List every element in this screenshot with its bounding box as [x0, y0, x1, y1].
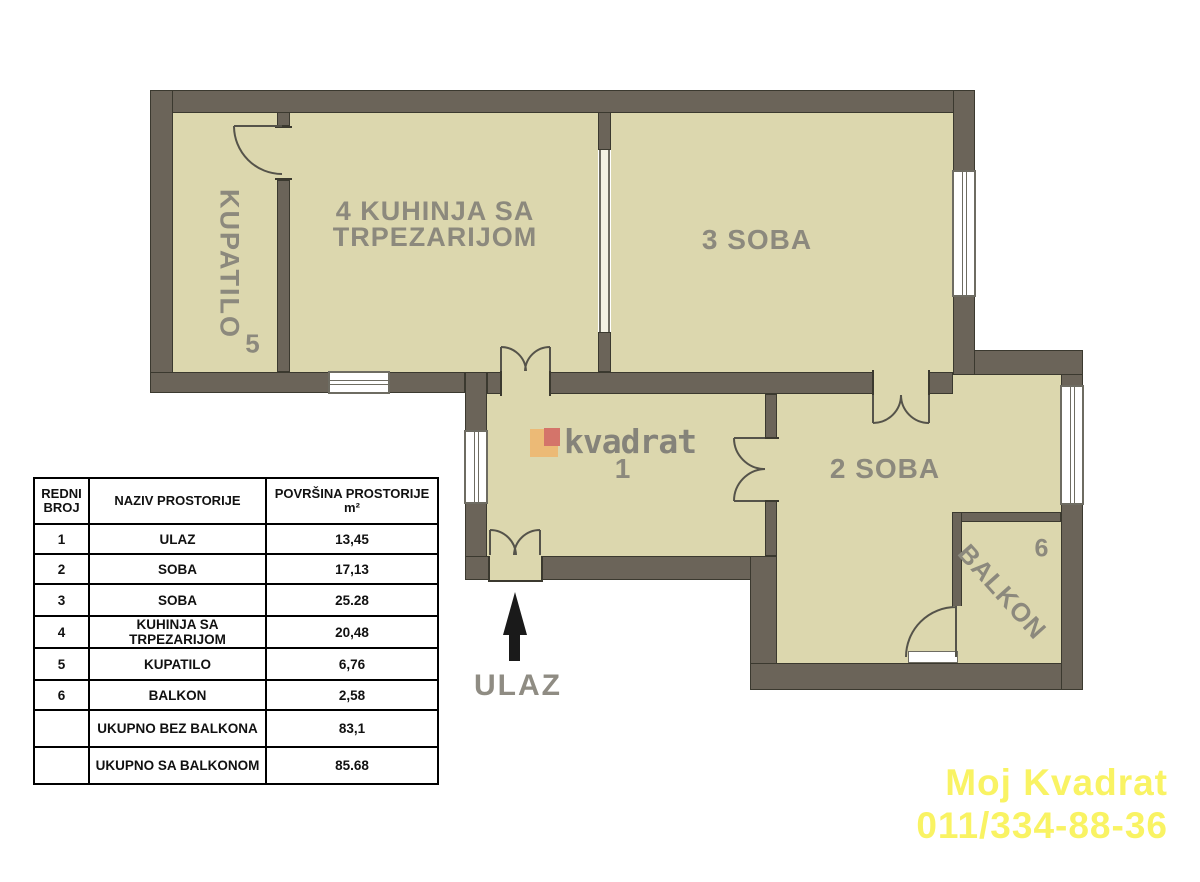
watermark-kvadrat: kvadrat [530, 425, 696, 458]
row-area: 2,58 [266, 680, 438, 710]
bathroom-door-opening [275, 126, 292, 180]
row-num [34, 710, 89, 747]
row-num: 1 [34, 524, 89, 554]
row-area: 17,13 [266, 554, 438, 584]
row-name: SOBA [89, 554, 266, 584]
wall-left [150, 90, 173, 393]
row-num: 5 [34, 648, 89, 680]
table-row-total: UKUPNO SA BALKONOM 85.68 [34, 747, 438, 784]
kitchen-door-opening [500, 370, 551, 396]
row-num: 4 [34, 616, 89, 648]
row-name: BALKON [89, 680, 266, 710]
wall-top [150, 90, 975, 113]
table-row: 4 KUHINJA SA TRPEZARIJOM 20,48 [34, 616, 438, 648]
row-name: ULAZ [89, 524, 266, 554]
window-pane [1070, 387, 1075, 503]
header-redni-broj: REDNI BROJ [34, 478, 89, 524]
room-2-floor-upper [953, 375, 1061, 405]
kitchen-room3-thin-partition [599, 150, 610, 332]
label-entrance: ULAZ [474, 669, 562, 703]
window-pane [330, 380, 388, 385]
row-area: 83,1 [266, 710, 438, 747]
area-table: REDNI BROJ NAZIV PROSTORIJE POVRŠINA PRO… [33, 477, 439, 785]
kitchen-window [328, 371, 390, 394]
row-num: 3 [34, 584, 89, 616]
label-bathroom: KUPATILO [214, 189, 245, 339]
row-num [34, 747, 89, 784]
row-name: UKUPNO BEZ BALKONA [89, 710, 266, 747]
wall-bathroom-partition [277, 180, 290, 372]
table-row: 5 KUPATILO 6,76 [34, 648, 438, 680]
wall-kitchen-room3-stub-bottom [598, 332, 611, 372]
row-area: 13,45 [266, 524, 438, 554]
row-area: 25.28 [266, 584, 438, 616]
row-num: 6 [34, 680, 89, 710]
row-area: 6,76 [266, 648, 438, 680]
room3-room2-door-opening [872, 370, 930, 396]
label-kitchen-line2: TRPEZARIJOM [333, 224, 538, 250]
header-naziv-prostorije: NAZIV PROSTORIJE [89, 478, 266, 524]
agency-phone: 011/334-88-36 [916, 804, 1168, 847]
row-name: KUPATILO [89, 648, 266, 680]
balcony-door-sill [908, 651, 958, 663]
table-row: 3 SOBA 25.28 [34, 584, 438, 616]
row-name: SOBA [89, 584, 266, 616]
label-kitchen-line1: 4 KUHINJA SA [333, 198, 538, 224]
table-header-row: REDNI BROJ NAZIV PROSTORIJE POVRŠINA PRO… [34, 478, 438, 524]
wall-room2-bottom [750, 663, 1083, 690]
watermark-text: kvadrat [564, 425, 696, 458]
row-num: 2 [34, 554, 89, 584]
agency-name: Moj Kvadrat [916, 761, 1168, 804]
room2-window [1060, 385, 1084, 505]
label-kitchen: 4 KUHINJA SA TRPEZARIJOM [333, 198, 538, 250]
entrance-opening [488, 556, 543, 582]
table-row: 2 SOBA 17,13 [34, 554, 438, 584]
table-row: 6 BALKON 2,58 [34, 680, 438, 710]
hall-room2-door-opening [763, 437, 779, 502]
kvadrat-logo-icon [530, 428, 558, 457]
wall-bottom-left [150, 372, 465, 393]
label-room3: 3 SOBA [702, 224, 812, 256]
wall-bathroom-stub [277, 112, 290, 126]
row-area: 20,48 [266, 616, 438, 648]
row-area: 85.68 [266, 747, 438, 784]
wall-kitchen-room3-stub-top [598, 112, 611, 150]
header-povrsina: POVRŠINA PROSTORIJE m² [266, 478, 438, 524]
label-balcony-number: 6 [1035, 535, 1050, 564]
agency-contact: Moj Kvadrat 011/334-88-36 [916, 761, 1168, 847]
hall-window [464, 430, 488, 504]
window-pane [962, 172, 967, 295]
room3-window [952, 170, 976, 297]
table-row: 1 ULAZ 13,45 [34, 524, 438, 554]
label-bathroom-number: 5 [245, 329, 260, 360]
wall-balcony-top [952, 512, 1061, 522]
row-name: KUHINJA SA TRPEZARIJOM [89, 616, 266, 648]
kvadrat-logo-red-square [544, 428, 560, 446]
row-name: UKUPNO SA BALKONOM [89, 747, 266, 784]
table-row-total: UKUPNO BEZ BALKONA 83,1 [34, 710, 438, 747]
label-room2: 2 SOBA [830, 453, 940, 485]
entrance-arrow [503, 592, 527, 661]
window-pane [474, 432, 479, 502]
